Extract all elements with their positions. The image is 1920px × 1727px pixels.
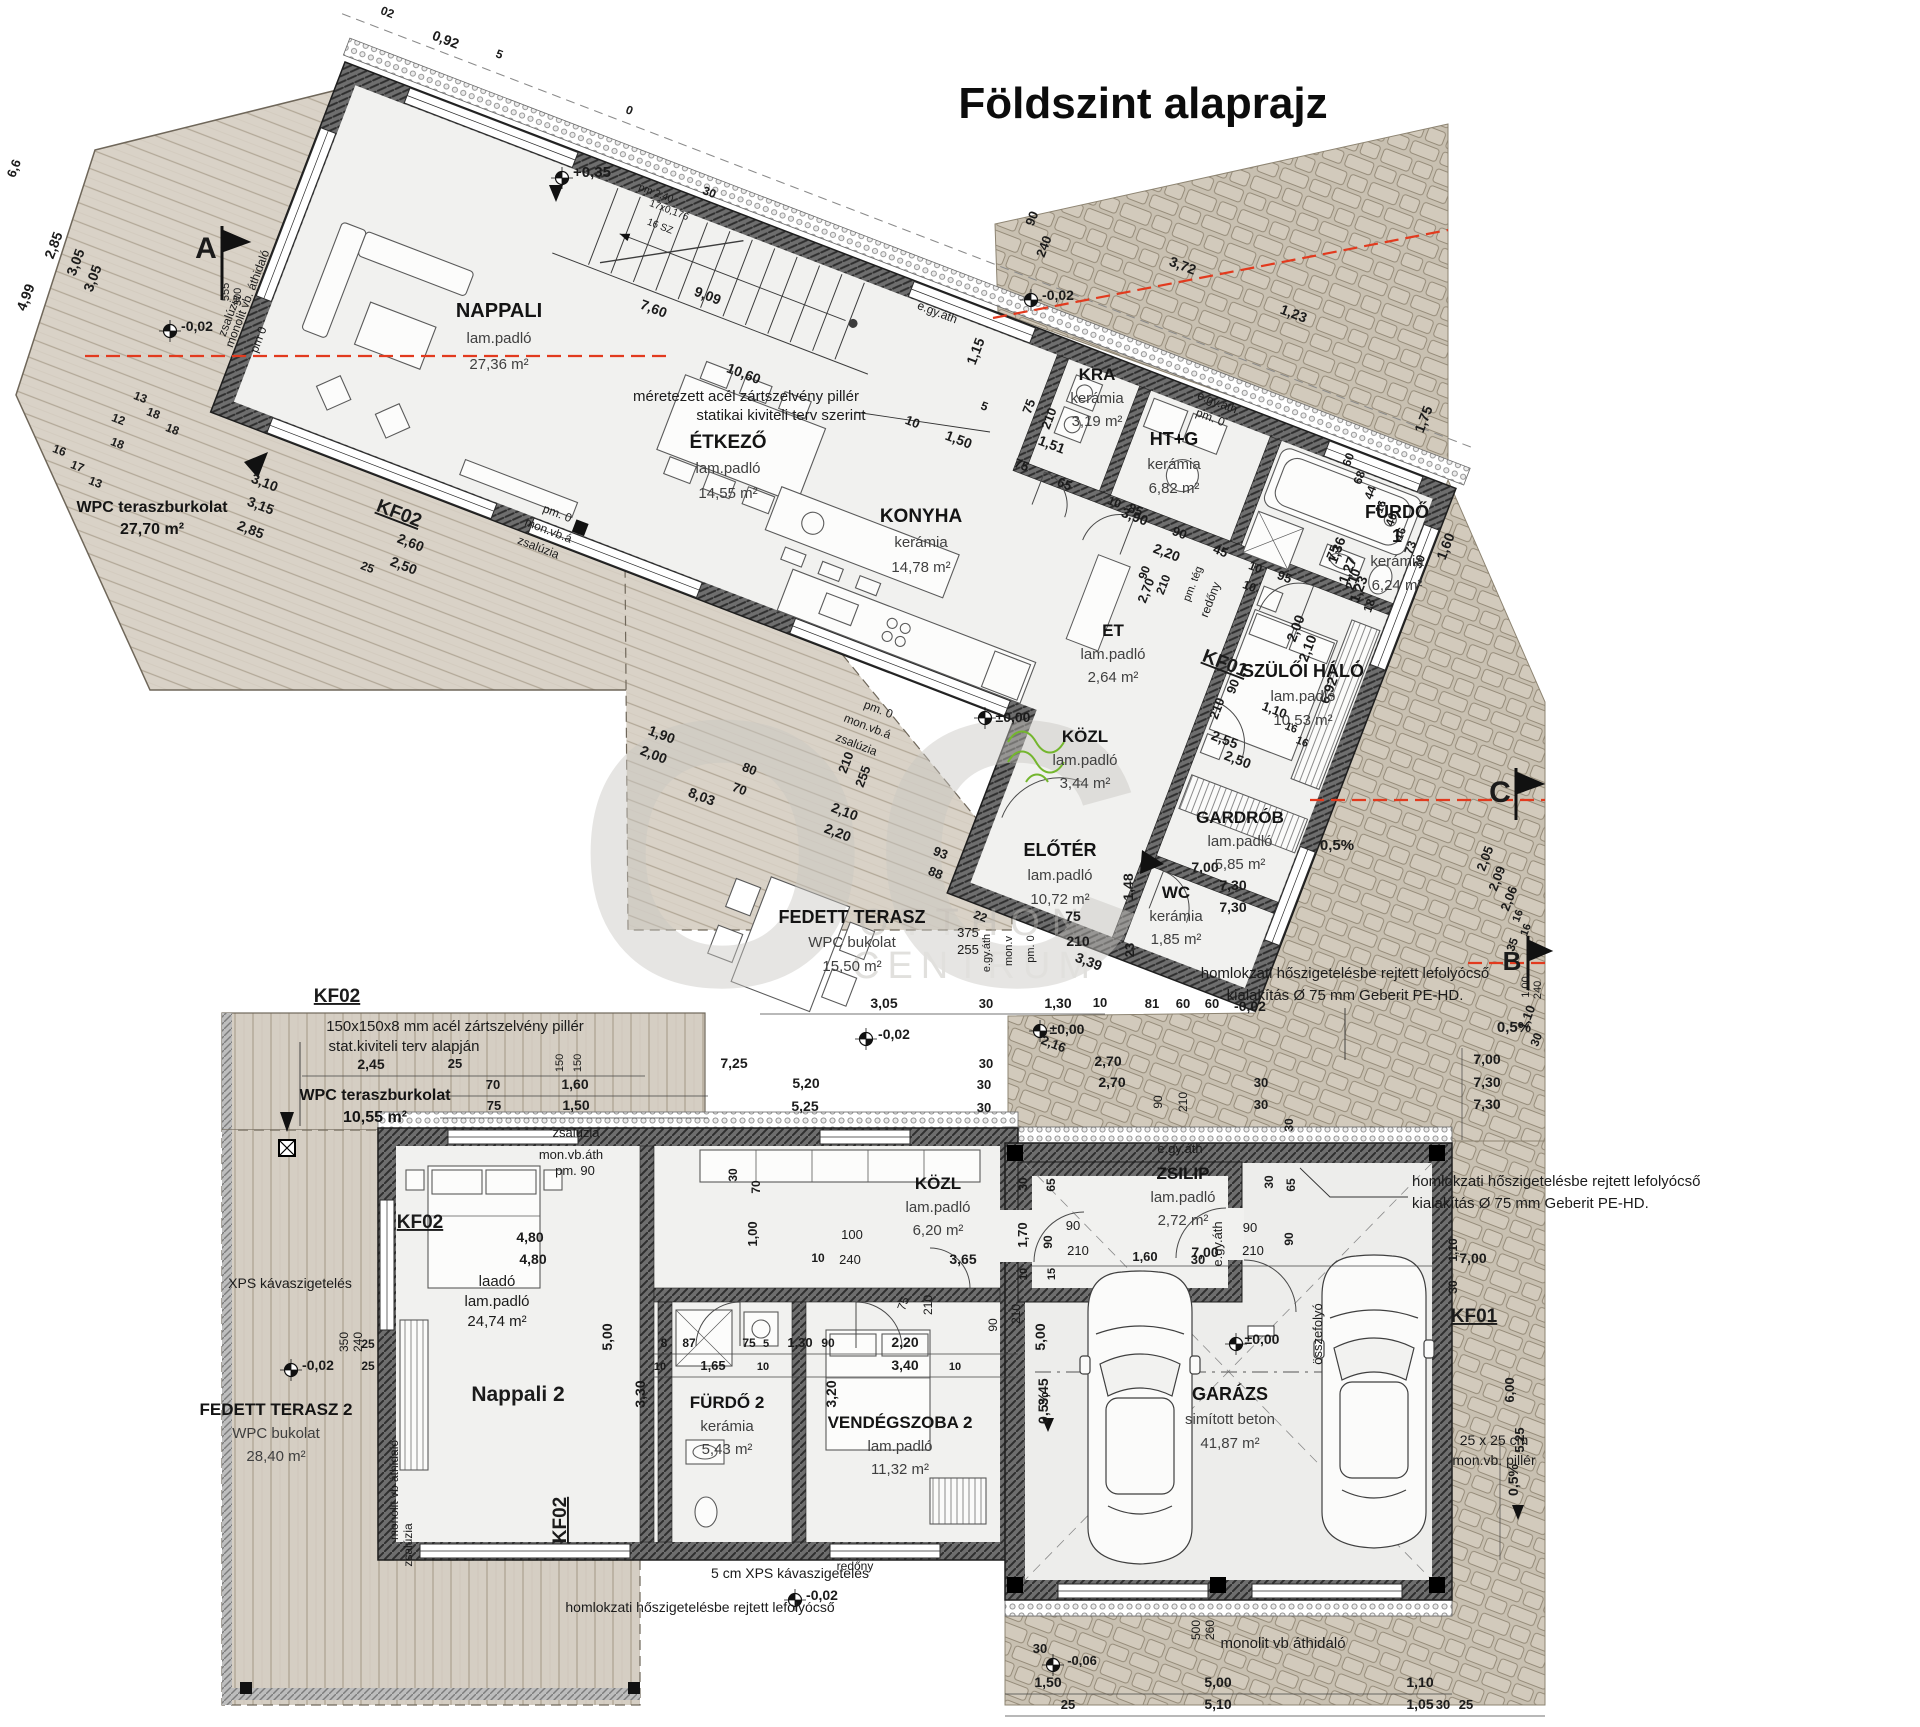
dim-label-206: 100 (841, 1227, 863, 1242)
dim-label-30: ±0,00 (1245, 1331, 1280, 1347)
dim-label-32: -0,02 (1042, 287, 1074, 303)
dim-label-197: 150 (554, 1054, 566, 1072)
dim-label-191: 2,45 (357, 1056, 384, 1072)
dim-label-223: 30 (1254, 1075, 1268, 1090)
dim-label-266: 5,25 (1512, 1427, 1527, 1452)
dim-label-244: 1,30 (787, 1335, 812, 1350)
dim-label-251: 3,20 (823, 1380, 839, 1407)
dim-label-196: 1,50 (562, 1097, 589, 1113)
floorplan-page: OC OTTHON CENTRUM Földszint alaprajz ABC… (0, 0, 1920, 1727)
dim-label-256: 25 (361, 1337, 375, 1351)
dim-label-169: 2,70 (1098, 1074, 1125, 1090)
dim-label-159: 210 (1066, 933, 1090, 949)
dim-label-228: 90 (1282, 1232, 1296, 1246)
dim-label-143: 0,5% (1320, 837, 1354, 854)
dim-label-199: zsalúzia (553, 1125, 601, 1140)
room-label-kozl2: KÖZLlam.padló6,20 m² (905, 1174, 970, 1239)
dim-label-194: 1,60 (561, 1076, 588, 1092)
dim-label-261: 0,5% (1035, 1391, 1051, 1423)
dim-label-193: 70 (486, 1077, 500, 1092)
dim-label-249: 3,40 (891, 1357, 918, 1373)
dim-label-265: 6,00 (1502, 1377, 1517, 1402)
dim-label-207: 240 (839, 1252, 861, 1267)
dim-label-229: 90 (1243, 1220, 1257, 1235)
dim-label-264: 30 (1446, 1280, 1460, 1294)
dim-label-279: monolit vb áthidaló (387, 1440, 401, 1540)
dim-label-270: 5,10 (1204, 1696, 1231, 1712)
dim-label-41: 0 (624, 103, 636, 119)
note-drain-3: homlokzati hőszigetelésbe rejtett lefoly… (565, 1599, 834, 1615)
dim-label-164: 10 (1093, 995, 1107, 1010)
dim-label-238: 3,30 (632, 1380, 648, 1407)
note-lintel-1: monolit vb áthidaló (1220, 1635, 1345, 1652)
dim-label-168: 2,70 (1094, 1053, 1121, 1069)
dim-label-24: laadó (479, 1273, 516, 1290)
dim-label-142: 7,30 (1219, 899, 1246, 915)
dim-label-28: ±0,00 (996, 709, 1031, 725)
dim-label-254: 350 (337, 1332, 351, 1352)
car-right (1314, 1255, 1434, 1548)
dim-label-209: 30 (1016, 1177, 1030, 1191)
note-drain-1a: homlokzati hőszigetelésbe rejtett lefoly… (1201, 965, 1490, 982)
section-marker-a: A (195, 232, 217, 265)
dim-label-36: -0,02 (1234, 998, 1266, 1014)
dim-label-198: 150 (572, 1054, 584, 1072)
dim-label-214: 210 (1067, 1243, 1089, 1258)
dim-label-190: 30 (977, 1100, 991, 1115)
dim-label-236: 4,80 (519, 1251, 546, 1267)
dim-label-263: 1,10 (1446, 1238, 1460, 1262)
dim-label-250: 10 (949, 1361, 961, 1373)
dim-label-27: +0,35 (573, 164, 611, 181)
dim-label-277: 1,50 (1034, 1674, 1061, 1690)
dim-label-152: 240 (1532, 981, 1544, 999)
dim-label-275: 25 (1459, 1697, 1473, 1712)
dim-label-187: 5,25 (791, 1098, 818, 1114)
xps-marker (279, 1140, 295, 1156)
dim-label-216: 10 (1018, 1268, 1030, 1280)
dim-label-167: 60 (1205, 996, 1219, 1011)
dim-label-257: 25 (361, 1359, 375, 1373)
dim-label-204: 1,00 (745, 1221, 760, 1246)
dim-label-226: 30 (1262, 1175, 1276, 1189)
dim-label-179: 375 (957, 925, 979, 940)
dim-label-165: 81 (1145, 996, 1159, 1011)
dim-label-37: -0,06 (1067, 1653, 1097, 1668)
dim-label-166: 60 (1176, 996, 1190, 1011)
dim-label-31: -0,02 (181, 318, 213, 334)
dim-label-268: 260 (1203, 1620, 1217, 1640)
dim-label-273: 25 (1061, 1697, 1075, 1712)
note-xps-1: XPS kávaszigetelés (228, 1275, 352, 1291)
note-pillar-2b: stat.kiviteli terv alapján (329, 1038, 480, 1055)
dim-label-40: 5 (494, 47, 506, 63)
dim-label-245: 90 (821, 1336, 835, 1350)
dim-label-276: 30 (1033, 1641, 1047, 1656)
kf02-4: KF02 (550, 1497, 571, 1543)
dim-label-260: összefolyó (1310, 1303, 1325, 1364)
dim-label-267: 500 (1189, 1620, 1203, 1640)
dim-label-235: 4,80 (516, 1229, 543, 1245)
dim-label-272: 1,05 (1406, 1696, 1433, 1712)
dim-label-171: mon.v (1003, 936, 1015, 966)
car-left (1080, 1271, 1200, 1564)
kf01-2: KF01 (1451, 1306, 1498, 1327)
dim-label-47: 4,99 (13, 281, 38, 312)
dim-label-158: 75 (1065, 908, 1081, 924)
dim-label-280: zsalúzia (401, 1523, 415, 1567)
dim-label-241: 1,65 (700, 1358, 725, 1373)
dim-label-172: pm. 0 (1025, 935, 1037, 963)
dim-label-156: 7,30 (1473, 1074, 1500, 1090)
dim-label-252: 5,00 (1032, 1323, 1048, 1350)
dim-label-34: -0,02 (302, 1357, 334, 1373)
kf02-2: KF02 (314, 986, 360, 1007)
dim-label-192: 25 (448, 1056, 462, 1071)
dim-label-224: 30 (1254, 1097, 1268, 1112)
dim-label-274: 30 (1436, 1697, 1450, 1712)
dim-label-271: 1,10 (1406, 1674, 1433, 1690)
dim-label-195: 75 (487, 1098, 501, 1113)
dim-label-188: 30 (979, 1056, 993, 1071)
dim-label-222: 210 (1176, 1092, 1190, 1112)
dim-label-200: mon.vb.áth (539, 1147, 603, 1162)
dim-label-220: 210 (1009, 1304, 1023, 1324)
dim-label-243: 5 (763, 1338, 769, 1350)
room-label-kozl1: KÖZLlam.padló3,44 m² (1052, 727, 1117, 792)
dim-label-213: 90 (1066, 1218, 1080, 1233)
dim-label-186: 5,20 (792, 1075, 819, 1091)
dim-label-141: 7,30 (1219, 877, 1246, 893)
dim-label-259: 7,00 (1459, 1250, 1486, 1266)
dim-label-39: 0,92 (430, 27, 461, 52)
dim-label-210: 65 (1044, 1178, 1058, 1192)
dim-label-155: 7,00 (1473, 1051, 1500, 1067)
dim-label-278: redőny (837, 1559, 874, 1573)
dim-label-258: 7,00 (1191, 1244, 1218, 1260)
dim-label-157: 7,30 (1473, 1096, 1500, 1112)
dim-label-184: 30 (979, 996, 993, 1011)
note-drain-2b: kialakítás Ø 75 mm Geberit PE-HD. (1412, 1195, 1649, 1212)
dim-label-233: e.gy.áth (1157, 1141, 1202, 1156)
dim-label-173: e.gy.áth (981, 934, 993, 972)
note-drain-2a: homlokzati hőszigetelésbe rejtett lefoly… (1412, 1173, 1701, 1190)
dim-label-201: pm. 90 (555, 1163, 595, 1178)
dim-label-163: 1,30 (1044, 995, 1071, 1011)
dim-label-38: 02 (379, 3, 397, 21)
dim-label-218: 210 (921, 1295, 935, 1315)
dim-label-208: 3,65 (949, 1251, 976, 1267)
dim-label-33: -0,02 (878, 1026, 910, 1042)
dim-label-231: 1,60 (1132, 1249, 1157, 1264)
room-label-htg: HT+Gkerámia6,82 m² (1147, 429, 1201, 497)
section-marker-c: C (1489, 776, 1511, 809)
dim-label-211: 1,70 (1015, 1222, 1030, 1247)
dim-label-237: 5,00 (599, 1323, 615, 1350)
dim-label-29: ±0,00 (1050, 1021, 1085, 1037)
dim-label-212: 90 (1041, 1235, 1055, 1249)
dim-label-269: 5,00 (1204, 1674, 1231, 1690)
dim-label-230: 210 (1242, 1243, 1264, 1258)
room-label-zsilip: ZSILIPlam.padló2,72 m² (1150, 1164, 1215, 1229)
dim-label-203: 70 (749, 1180, 763, 1194)
dim-label-246: 10 (654, 1361, 666, 1373)
dim-label-242: 75 (742, 1336, 756, 1350)
dim-label-219: 90 (986, 1318, 1000, 1332)
label-nappali2: Nappali 2 (471, 1383, 564, 1406)
dim-label-185: 7,25 (720, 1055, 747, 1071)
note-pillar-1b: statikai kiviteli terv szerint (696, 407, 866, 424)
note-pillar-1a: méretezett acél zártszelvény pillér (633, 388, 859, 405)
dim-label-161: 1,48 (1120, 873, 1136, 900)
dim-label-43: 6,6 (4, 157, 24, 179)
floor-plan-svg: OC OTTHON CENTRUM Földszint alaprajz ABC… (0, 0, 1920, 1727)
dim-label-248: 2,20 (891, 1334, 918, 1350)
kf02-3: KF02 (397, 1212, 443, 1233)
dim-label-162: 23 (1122, 943, 1137, 957)
dim-label-215: 15 (1046, 1268, 1058, 1280)
room-label-etkezo: ÉTKEZŐlam.padló14,55 m² (689, 431, 766, 502)
room-label-eloter: ELŐTÉRlam.padló10,72 m² (1023, 839, 1096, 908)
dim-label-25: lam.padló (464, 1293, 529, 1310)
dim-label-247: 10 (757, 1361, 769, 1373)
dim-label-35: -0,02 (806, 1587, 838, 1603)
note-pillar-2a: 150x150x8 mm acél zártszelvény pillér (326, 1018, 584, 1035)
dim-label-221: 90 (1151, 1095, 1165, 1109)
dim-label-202: 30 (726, 1168, 740, 1182)
note-pillar-3b: mon.vb. pillér (1452, 1452, 1536, 1468)
dim-label-180: 255 (957, 942, 979, 957)
page-title: Földszint alaprajz (958, 79, 1327, 128)
dim-label-189: 30 (977, 1077, 991, 1092)
dim-label-240: 87 (682, 1336, 696, 1350)
dim-label-227: 65 (1284, 1178, 1298, 1192)
dim-label-151: 1,00 (1520, 976, 1532, 997)
dim-label-239: 8 (661, 1336, 668, 1350)
dim-label-26: 24,74 m² (467, 1313, 526, 1330)
dim-label-205: 10 (811, 1251, 825, 1265)
dim-label-262: 0,5% (1505, 1463, 1521, 1495)
dim-label-183: 3,05 (870, 995, 897, 1011)
dim-label-225: 30 (1282, 1118, 1296, 1132)
